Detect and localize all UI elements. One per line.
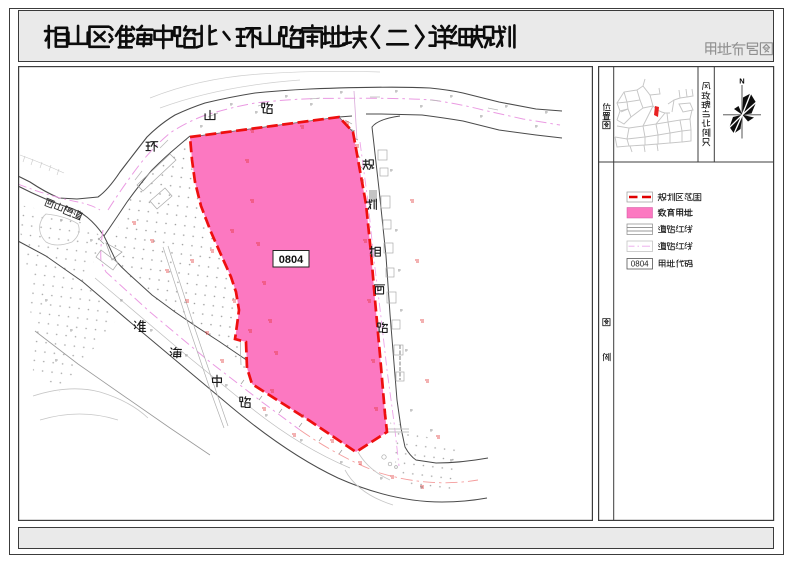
- svg-text:0804: 0804: [631, 260, 649, 269]
- svg-text:N: N: [739, 77, 744, 86]
- svg-text:0804: 0804: [279, 254, 304, 266]
